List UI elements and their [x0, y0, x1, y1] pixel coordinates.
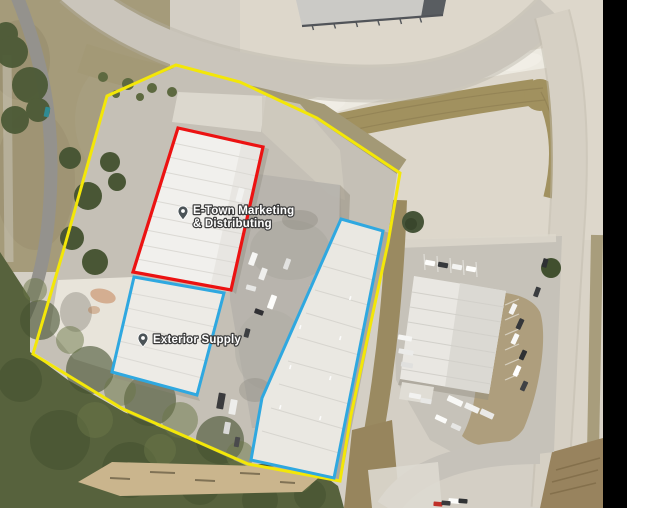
place-pin-dot	[181, 209, 185, 213]
place-label-text: Exterior Supply	[153, 334, 241, 346]
screenshot-canvas: E-Town Marketing & Distributing Exterior…	[0, 0, 650, 508]
map-label-exterior-supply[interactable]: Exterior Supply	[138, 333, 241, 347]
satellite-map[interactable]: E-Town Marketing & Distributing Exterior…	[0, 0, 603, 508]
tree-shadow	[405, 218, 417, 230]
place-pin-dot	[141, 336, 145, 340]
white-margin	[627, 0, 650, 508]
building-east-roof	[398, 276, 506, 404]
